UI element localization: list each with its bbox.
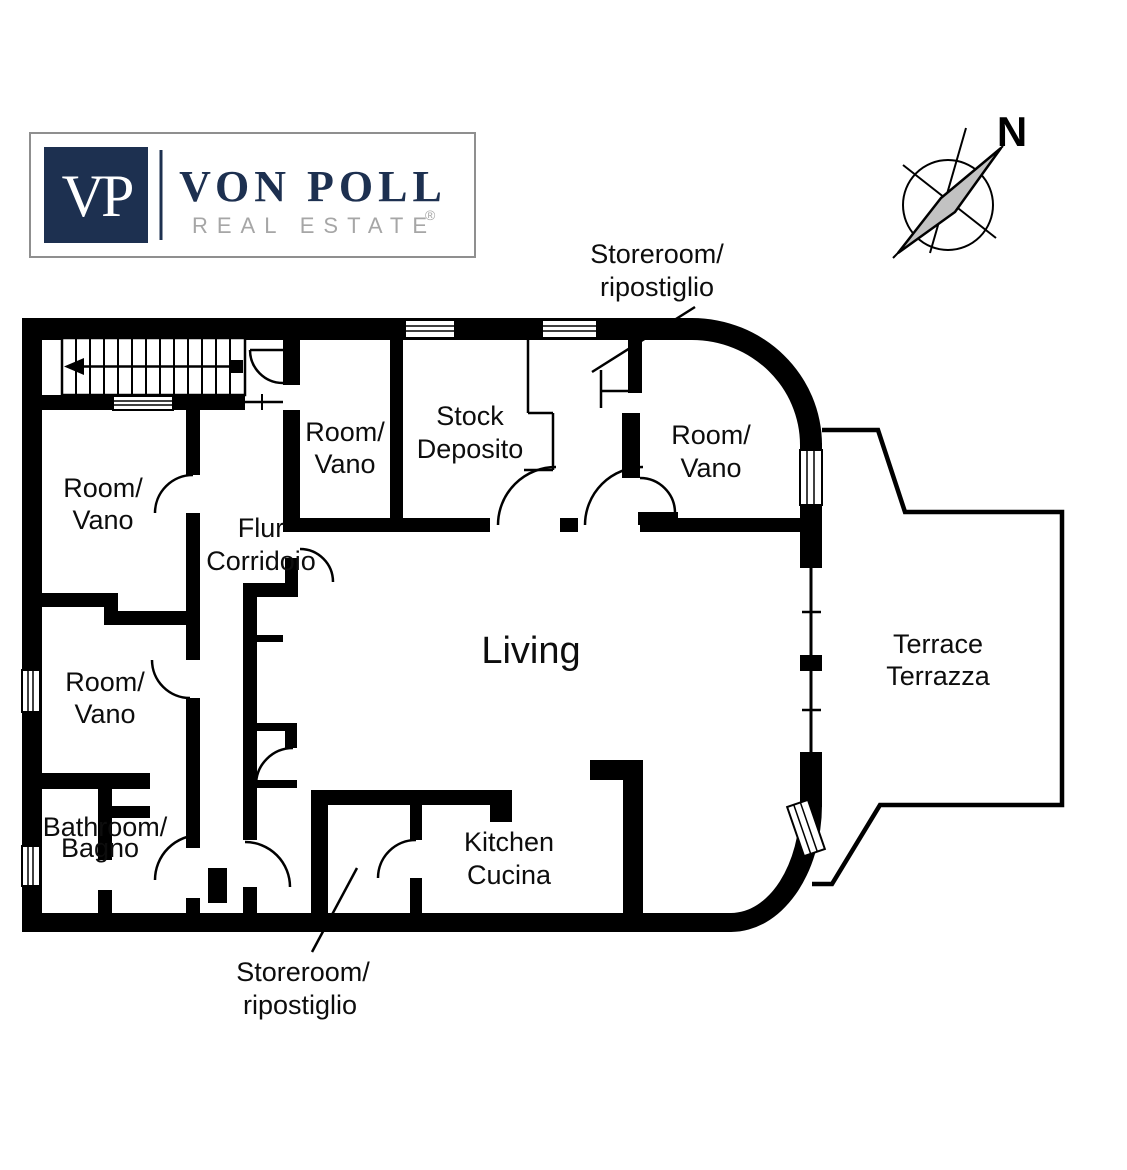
door-arc-room-top-right	[640, 478, 675, 513]
window-top-2	[542, 320, 597, 338]
label-stock-1: Stock	[436, 401, 504, 431]
window-left-1	[22, 670, 40, 712]
staircase	[62, 338, 245, 395]
compass-needle	[898, 148, 1001, 253]
compass-north-label: N	[997, 108, 1027, 155]
window-left-2	[22, 846, 40, 886]
label-room-upper-left-2: Vano	[72, 505, 133, 535]
label-kitchen-2: Cucina	[467, 860, 552, 890]
door-arc-room-lower-left	[152, 660, 190, 698]
door-arc-room-upper-left	[155, 475, 193, 513]
door-arc-living-hall	[256, 748, 293, 785]
label-bathroom-2: Bagno	[61, 833, 139, 863]
wall-right-seg	[800, 505, 822, 568]
stair-line-end	[230, 360, 243, 373]
label-room-upper-left-1: Room/	[63, 473, 143, 503]
label-storeroom-bottom-2: ripostiglio	[243, 990, 357, 1020]
label-room-top-middle-1: Room/	[305, 417, 385, 447]
label-kitchen-1: Kitchen	[464, 827, 554, 857]
wall-right-seg	[800, 752, 822, 807]
floor-plan-canvas: VP VON POLL REAL ESTATE ® N	[0, 0, 1127, 1170]
von-poll-logo: VP VON POLL REAL ESTATE ®	[30, 133, 475, 257]
label-terrace-1: Terrace	[893, 629, 983, 659]
wall-bottom	[22, 913, 731, 932]
window-right-top	[800, 450, 822, 505]
label-corridor-1: Flur	[238, 513, 285, 543]
logo-monogram-text: VP	[62, 163, 132, 229]
compass-rose: N	[893, 108, 1027, 258]
label-storeroom-top-2: ripostiglio	[600, 272, 714, 302]
label-room-top-right-2: Vano	[680, 453, 741, 483]
window-under-stairs	[113, 396, 173, 410]
logo-registered-mark: ®	[425, 207, 436, 223]
window-mullion	[800, 655, 822, 671]
label-room-lower-left-1: Room/	[65, 667, 145, 697]
door-arc-vestibule-left	[498, 467, 556, 525]
logo-tagline-text: REAL ESTATE	[192, 213, 436, 238]
label-storeroom-bottom-1: Storeroom/	[236, 957, 370, 987]
label-storeroom-top-1: Storeroom/	[590, 239, 724, 269]
window-top-1	[405, 320, 455, 338]
door-arc-storeroom-bottom	[378, 840, 416, 878]
door-arc-stairs	[250, 350, 283, 383]
label-corridor-2: Corridoio	[206, 546, 316, 576]
label-living: Living	[481, 630, 580, 672]
label-room-lower-left-2: Vano	[74, 699, 135, 729]
label-stock-2: Deposito	[417, 434, 524, 464]
label-room-top-middle-2: Vano	[314, 449, 375, 479]
door-arc-hall-right	[245, 842, 290, 887]
label-room-top-right-1: Room/	[671, 420, 751, 450]
logo-brand-text: VON POLL	[179, 162, 447, 211]
wall-left	[22, 318, 42, 932]
label-terrace-2: Terrazza	[886, 661, 991, 691]
